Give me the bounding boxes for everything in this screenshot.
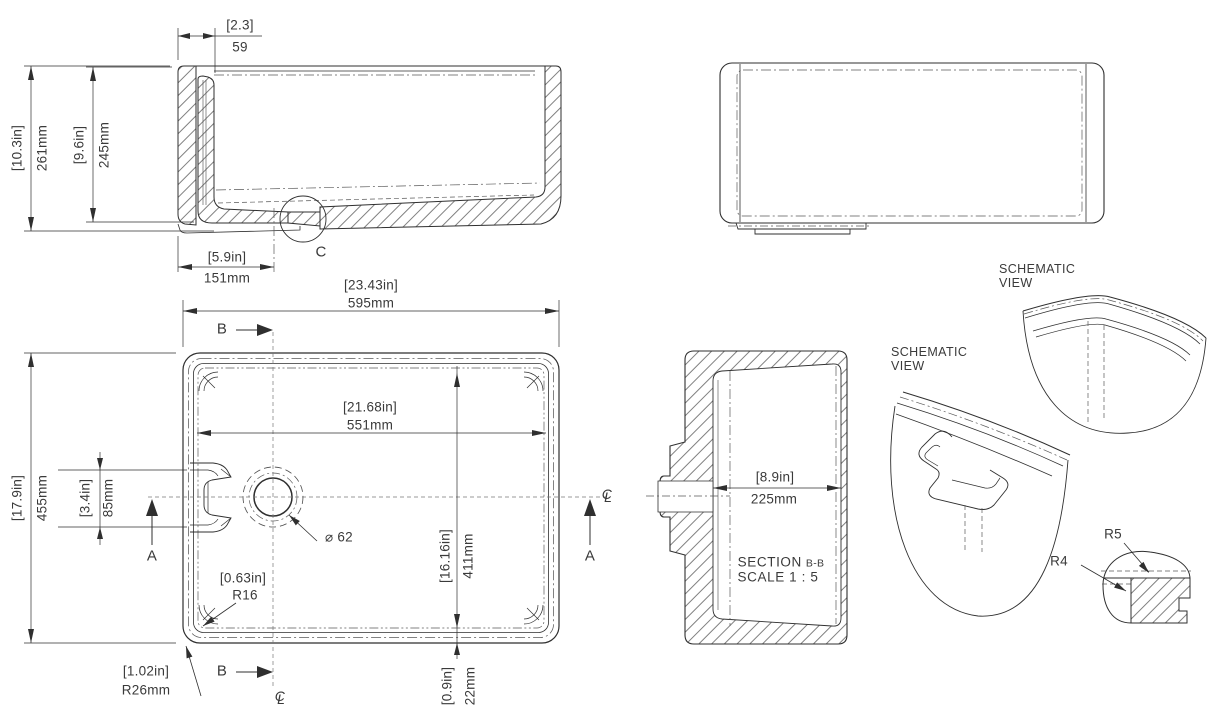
drawing-canvas: [0, 0, 1214, 728]
schematic-1-label-line2: VIEW: [999, 277, 1033, 290]
detail-c-view: [1081, 543, 1191, 623]
rear-elevation-view: [720, 63, 1104, 234]
section-a-marker-left: A: [147, 549, 157, 564]
centerline-symbol-bottom: CL: [275, 689, 285, 703]
dim-drain-offset-mm: 151mm: [204, 271, 250, 285]
schematic-2-label-line1: SCHEMATIC: [891, 346, 967, 359]
dim-weir-inch: [3.4in]: [78, 479, 92, 518]
section-bb-view: [646, 351, 847, 644]
dim-section-width-inch: [8.9in]: [756, 470, 795, 484]
schematic-2-label-line2: VIEW: [891, 360, 925, 373]
centerline-symbol-right: CL: [602, 487, 612, 501]
dim-width-inch: [23.43in]: [344, 278, 398, 292]
dim-outer-corner-inch: [1.02in]: [123, 664, 169, 678]
dim-inner-corner-mm: R16: [232, 588, 258, 602]
section-bb-title: SECTION B-B: [738, 555, 825, 569]
dim-section-width-mm: 225mm: [751, 492, 797, 506]
technical-drawing-sheet: [2.3] 59 [10.3in] 261mm [9.6in] 245mm [5…: [0, 0, 1214, 728]
dim-height-inch: [10.3in]: [10, 125, 24, 171]
schematic-1-label-line1: SCHEMATIC: [999, 263, 1075, 276]
section-bb-scale: SCALE 1 : 5: [738, 570, 819, 584]
dim-depth-mm: 245mm: [97, 122, 111, 168]
dim-outer-corner-mm: R26mm: [122, 683, 171, 697]
dim-lip-mm: 59: [232, 40, 248, 54]
dim-inner-height-inch: [16.16in]: [438, 529, 452, 583]
dim-fv-height-inch: [17.9in]: [10, 475, 24, 521]
dim-inner-width-inch: [21.68in]: [343, 400, 397, 414]
dim-inner-corner-inch: [0.63in]: [220, 571, 266, 585]
radius-r5-label: R5: [1104, 527, 1122, 541]
dim-lip-inch: [2.3]: [226, 18, 254, 32]
dim-height-mm: 261mm: [35, 125, 49, 171]
dim-inner-height-mm: 411mm: [461, 533, 475, 578]
section-b-marker-top: B: [217, 322, 227, 337]
dim-width-mm: 595mm: [348, 296, 394, 310]
dim-inner-width-mm: 551mm: [347, 418, 393, 432]
dim-depth-inch: [9.6in]: [72, 126, 86, 165]
dim-base-mm: 22mm: [463, 667, 477, 706]
dim-base-inch: [0.9in]: [440, 667, 454, 706]
dim-fv-height-mm: 455mm: [35, 475, 49, 521]
detail-c-marker: C: [315, 245, 326, 260]
dim-weir-mm: 85mm: [101, 479, 115, 518]
schematic-view-1: [1023, 296, 1206, 434]
radius-r4-label: R4: [1050, 554, 1068, 568]
section-a-marker-right: A: [585, 549, 595, 564]
section-b-marker-bottom: B: [217, 664, 227, 679]
dim-drain-offset-inch: [5.9in]: [208, 250, 247, 264]
schematic-view-2: [891, 392, 1070, 616]
dim-drain-diameter: ⌀ 62: [325, 530, 353, 544]
